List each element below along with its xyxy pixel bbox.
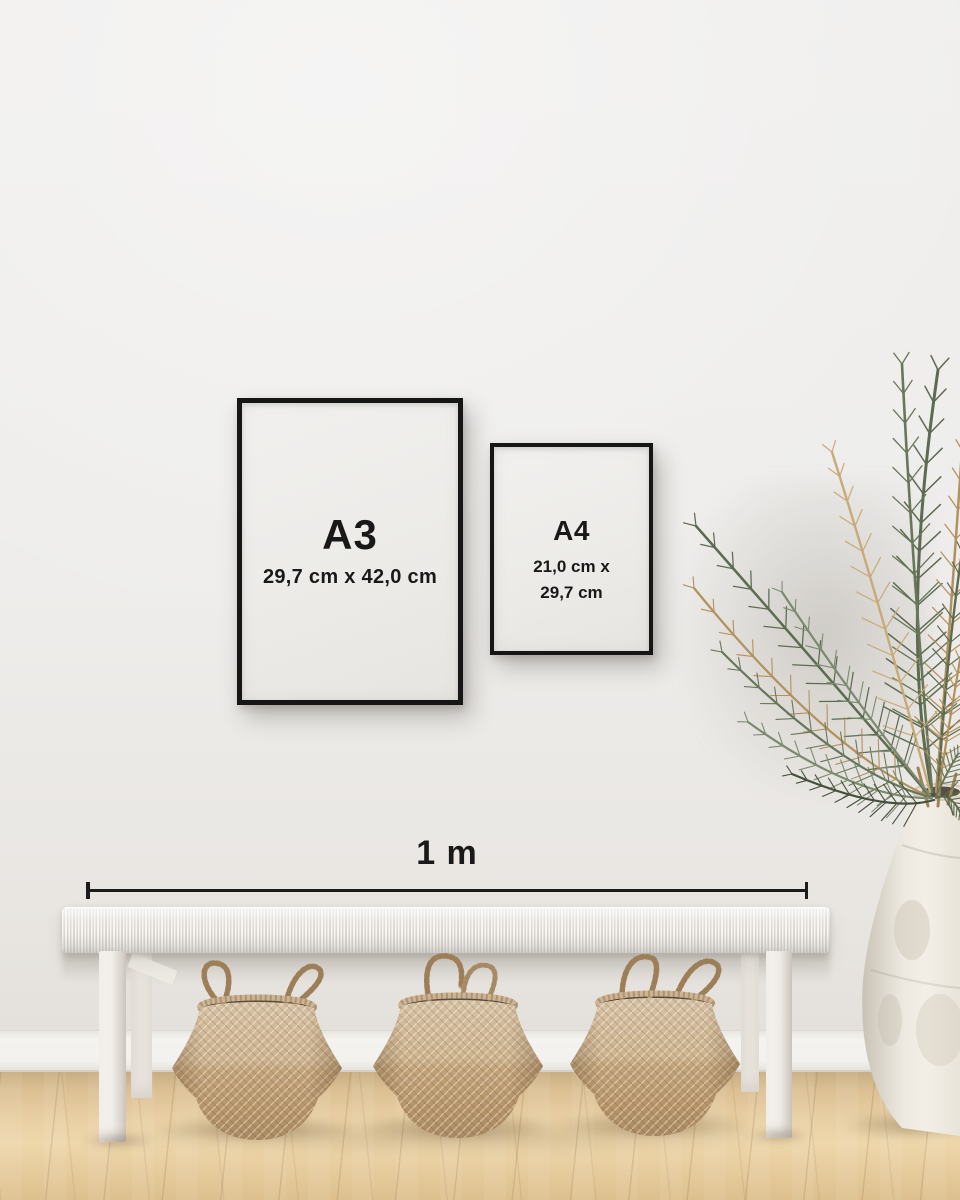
poster-frame-a3: A3 29,7 cm x 42,0 cm xyxy=(237,398,463,705)
frame-a4-dimensions: 21,0 cm x 29,7 cm xyxy=(533,554,610,605)
poster-frame-a4: A4 21,0 cm x 29,7 cm xyxy=(490,443,653,655)
frame-a3-size-label: A3 xyxy=(263,514,437,556)
vase xyxy=(862,784,960,1136)
basket-middle xyxy=(373,956,543,1138)
frame-a4-dimensions-line2: 29,7 cm xyxy=(533,580,610,606)
palm-plant xyxy=(683,352,960,826)
scene: A3 29,7 cm x 42,0 cm A4 21,0 cm x 29,7 c… xyxy=(0,0,960,1200)
basket-left xyxy=(172,963,342,1140)
frame-a3-paper: A3 29,7 cm x 42,0 cm xyxy=(242,403,458,700)
bench-leg-front-left xyxy=(99,951,126,1142)
frame-a4-paper: A4 21,0 cm x 29,7 cm xyxy=(494,447,649,651)
frame-a4-dimensions-line1: 21,0 cm x xyxy=(533,554,610,580)
plant-and-vase xyxy=(650,330,960,1200)
frame-a3-dimensions: 29,7 cm x 42,0 cm xyxy=(263,566,437,589)
bench-leg-left-shadow xyxy=(80,1134,156,1148)
frame-a4-size-label: A4 xyxy=(533,517,610,545)
